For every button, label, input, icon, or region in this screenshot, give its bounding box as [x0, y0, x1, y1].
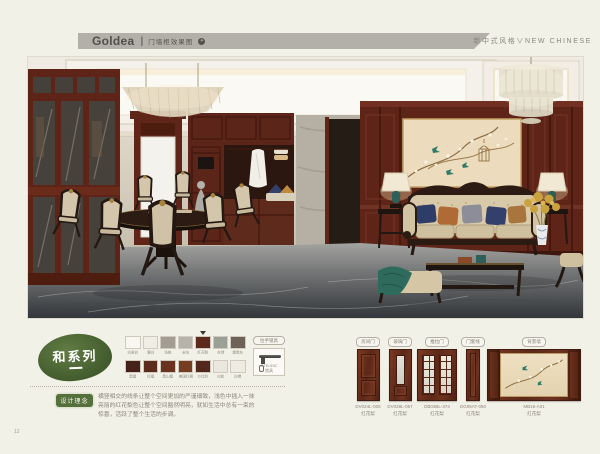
swatch: 黑山檀	[160, 360, 176, 380]
door-handle-icon	[259, 355, 281, 358]
swatch: 黑檀	[125, 360, 141, 380]
style-title: 新中式风格∨NEW CHINESE	[473, 36, 592, 46]
product-tag: 玻璃门	[388, 337, 412, 347]
swatch: 美国红枫	[178, 360, 194, 380]
sofa	[402, 182, 546, 255]
glass-partition	[28, 69, 120, 285]
casing-image	[466, 349, 480, 401]
header-subtitle: 门墙柜效果图	[148, 36, 193, 46]
selected-marker-icon	[200, 331, 206, 335]
product-tag: 背景墙	[522, 337, 546, 347]
product-label: DG06AT-050红花梨	[460, 404, 486, 418]
mural-panel	[403, 119, 521, 187]
product-tag: 推拉门	[425, 337, 449, 347]
product-wall-panel: 背景墙 MB16-A01红花梨	[487, 330, 581, 418]
hardware-badge: 拉手锁具	[253, 336, 285, 345]
product-label: DV028L-067红花梨	[384, 404, 416, 418]
swatch-selected: 红花梨	[195, 336, 211, 356]
product-door-1: 房间门 DV024L-005红花梨	[352, 330, 384, 418]
wall-panel-image	[487, 349, 581, 401]
swatch: 沙比利	[195, 360, 211, 380]
product-label: MB16-A01红花梨	[487, 404, 581, 418]
swatch: 白松	[213, 360, 229, 380]
header-bar: Goldea | 门墙柜效果图 ✦	[78, 33, 490, 49]
product-door-2: 玻璃门 DV028L-067红花梨	[384, 330, 416, 418]
swatch: 红檀	[143, 360, 159, 380]
series-badge: 和系列	[37, 333, 113, 383]
dotted-divider	[30, 386, 285, 387]
swatch: 白瓷白	[125, 336, 141, 356]
swatch: 灰绿	[213, 336, 229, 356]
product-label: DB03BL-374红花梨	[415, 404, 459, 418]
product-tag: 房间门	[356, 337, 380, 347]
swatch: 米灰	[178, 336, 194, 356]
design-concept-badge: 设计理念	[56, 394, 93, 407]
sliding-door-image	[417, 349, 457, 401]
solid-door-image	[357, 349, 380, 401]
swatch-row-2: 黑檀 红檀 黑山檀 美国红枫 沙比利 白松 白橡	[125, 360, 247, 380]
design-concept-text: 横竖相交的线条让整个空间更加的严谨细致，浅色中插入一抹亮丽的红花梨色让整个空间豁…	[98, 393, 260, 420]
series-underline	[69, 367, 82, 369]
brand-logo: Goldea	[92, 34, 134, 48]
swatch: 烟熏灰	[230, 336, 246, 356]
brand-divider: |	[140, 36, 143, 47]
product-casing: 门套线 DG06AT-050红花梨	[460, 330, 486, 418]
hardware-code: GTB-53C 锁具	[254, 363, 284, 373]
swatch-row-1: 白瓷白 暖白 浅咖 米灰 红花梨 灰绿 烟熏灰	[125, 336, 247, 356]
swatch: 暖白	[143, 336, 159, 356]
product-door-3: 推拉门 DB03BL-374红花梨	[415, 330, 459, 418]
color-swatches: 白瓷白 暖白 浅咖 米灰 红花梨 灰绿 烟熏灰 黑檀 红檀 黑山檀 美国红枫 沙…	[125, 336, 247, 380]
flower-seal-icon: ✦	[198, 38, 205, 45]
mural-thumbnail	[500, 353, 568, 397]
glass-door-image	[389, 349, 412, 401]
room-render	[28, 57, 583, 318]
hardware-box: GTB-53C 锁具	[253, 348, 285, 376]
stone-wall	[296, 115, 362, 247]
product-label: DV024L-005红花梨	[352, 404, 384, 418]
product-tag: 门套线	[461, 337, 485, 347]
room-render-scene	[28, 57, 583, 318]
series-name: 和系列	[52, 345, 98, 366]
page-number: 12	[14, 429, 20, 435]
swatch: 白橡	[230, 360, 246, 380]
catalog-page: Goldea | 门墙柜效果图 ✦ 新中式风格∨NEW CHINESE	[0, 0, 600, 454]
swatch: 浅咖	[160, 336, 176, 356]
